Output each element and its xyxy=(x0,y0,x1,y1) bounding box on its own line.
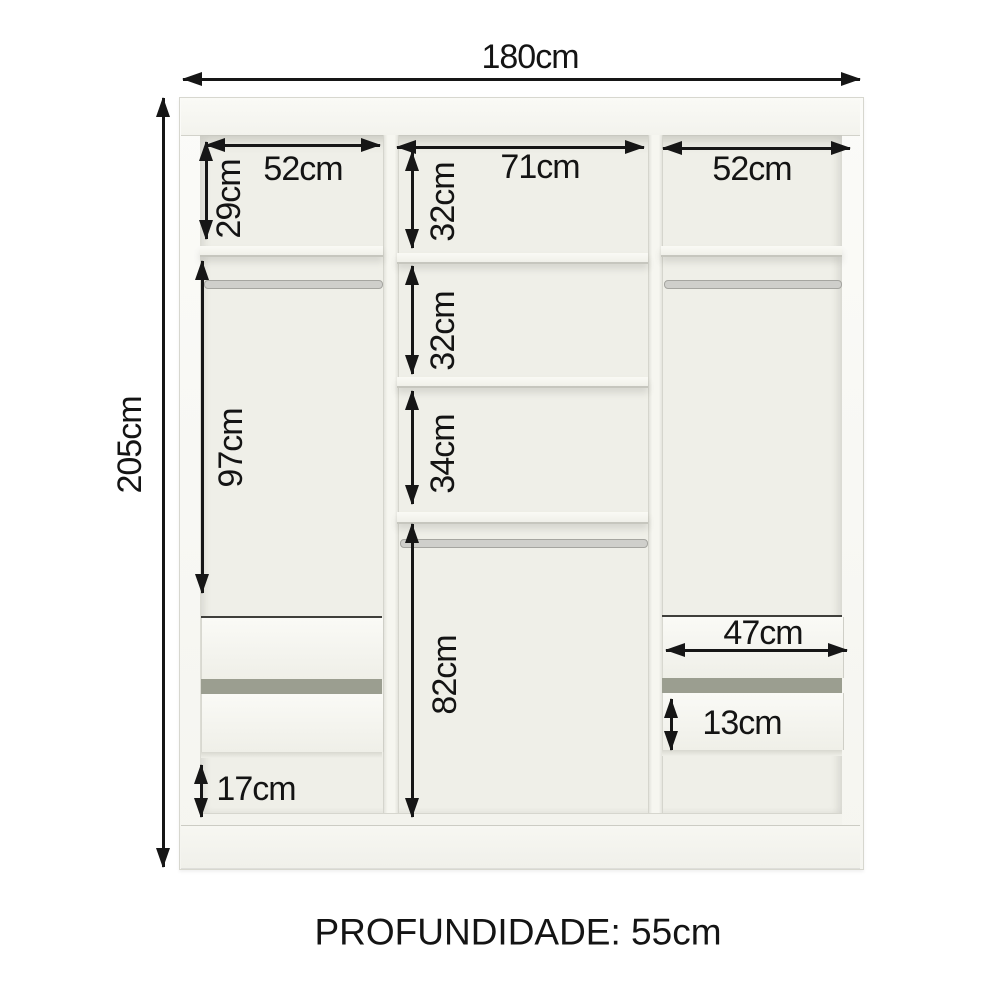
right-drawer-gap xyxy=(662,678,842,693)
arrow-mid-lower-height xyxy=(411,524,414,817)
shelf-middle-3 xyxy=(397,512,648,524)
arrow-mid-sec3-height xyxy=(411,391,414,504)
hanging-rod-middle xyxy=(400,539,648,548)
wardrobe-top-panel xyxy=(181,98,860,136)
arrow-left-hanging-height xyxy=(201,261,204,593)
hanging-rod-right xyxy=(664,280,842,289)
wardrobe-plinth xyxy=(181,825,860,869)
arrow-total-height xyxy=(162,98,165,867)
partition-left-middle xyxy=(383,135,399,813)
left-drawer-shadow xyxy=(201,752,382,758)
label-mid-sec1-height: 32cm xyxy=(426,162,460,241)
label-left-bottom-gap: 17cm xyxy=(216,772,295,806)
label-mid-col-width: 71cm xyxy=(500,150,579,184)
arrow-right-drawer-face-height xyxy=(670,699,673,750)
label-mid-lower-height: 82cm xyxy=(428,635,462,714)
shelf-right-top xyxy=(661,246,842,257)
arrow-right-drawer-width xyxy=(666,649,847,652)
left-drawer-1 xyxy=(201,618,384,679)
label-mid-sec3-height: 34cm xyxy=(426,414,460,493)
label-right-col-width: 52cm xyxy=(712,152,791,186)
label-total-width: 180cm xyxy=(481,40,578,74)
shelf-middle-2 xyxy=(397,377,648,388)
wardrobe-dimension-diagram: 180cm 205cm 52cm 71cm 52cm 29cm 97cm 17c… xyxy=(0,0,1000,1000)
arrow-mid-sec2-height xyxy=(411,266,414,374)
label-mid-sec2-height: 32cm xyxy=(426,291,460,370)
left-drawer-2 xyxy=(201,694,384,752)
arrow-left-bottom-gap xyxy=(200,765,203,817)
right-drawer-shadow xyxy=(662,750,842,756)
label-right-drawer-face-height: 13cm xyxy=(702,706,781,740)
label-total-height: 205cm xyxy=(113,396,147,493)
label-left-hanging-height: 97cm xyxy=(214,408,248,487)
arrow-mid-sec1-height xyxy=(411,152,414,248)
label-left-top-height: 29cm xyxy=(212,159,246,238)
shelf-left-top xyxy=(200,246,383,257)
partition-middle-right xyxy=(648,135,663,813)
shelf-middle-1 xyxy=(397,253,648,264)
hanging-rod-left xyxy=(204,280,383,289)
arrow-left-col-width xyxy=(206,144,380,147)
depth-note: PROFUNDIDADE: 55cm xyxy=(314,914,721,951)
arrow-total-width xyxy=(183,78,860,81)
arrow-left-top-height xyxy=(205,142,208,239)
label-left-col-width: 52cm xyxy=(263,152,342,186)
label-right-drawer-width: 47cm xyxy=(723,616,802,650)
left-drawer-gap xyxy=(201,679,382,694)
